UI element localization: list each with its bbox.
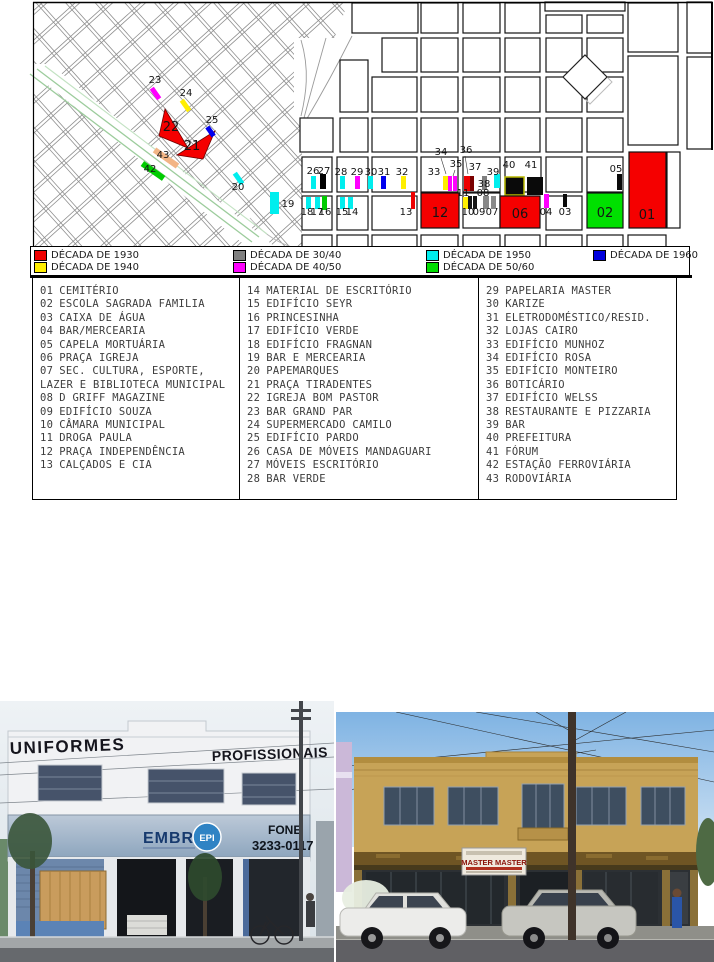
map-tick-26 (311, 176, 316, 189)
index-item-number: 14 (247, 285, 260, 297)
index-item-number: 15 (247, 298, 260, 310)
map-label-43: 43 (157, 150, 170, 161)
index-item-number: 06 (40, 352, 53, 364)
map-label-21: 21 (184, 139, 201, 154)
index-item-08: 08D GRIFF MAGAZINE (40, 392, 235, 405)
sign-bottom-line (466, 871, 522, 873)
index-column-3: 29PAPELARIA MASTER30KARIZE31ELETRODOMÉST… (479, 278, 676, 499)
tree-canopy-center (188, 853, 222, 901)
index-item-41: 41FÓRUM (486, 446, 672, 459)
index-item-04: 04BAR/MERCEARIA (40, 325, 235, 338)
legend-item: DÉCADA DE 1960 (593, 250, 698, 261)
index-item-name: EDIFÍCIO MUNHOZ (505, 339, 604, 351)
index-item-15: 15EDIFÍCIO SEYR (247, 298, 474, 311)
map-tick-04 (544, 194, 549, 208)
index-item-06: 06PRAÇA IGREJA (40, 352, 235, 365)
index-item-number: 24 (247, 419, 260, 431)
index-item-number: 10 (40, 419, 53, 431)
index-item-number: 01 (40, 285, 53, 297)
index-item-number: 41 (486, 446, 499, 458)
index-item-02: 02ESCOLA SAGRADA FAMILIA (40, 298, 235, 311)
index-item-42: 42ESTAÇÃO FERROVIÁRIA (486, 459, 672, 472)
map-label-29: 29 (351, 167, 364, 178)
index-item-number: 35 (486, 365, 499, 377)
index-item-number: 26 (247, 446, 260, 458)
legend-swatch (426, 250, 439, 261)
lilac-stripe (336, 772, 352, 778)
phone-label: FONE (268, 823, 301, 837)
index-item-23: 23BAR GRAND PAR (247, 406, 474, 419)
legend-label: DÉCADA DE 1930 (51, 250, 139, 261)
index-item-name: EDIFÍCIO MONTEIRO (505, 365, 618, 377)
index-item-name: EDIFÍCIO VERDE (266, 325, 359, 337)
brand-tagline-bar (143, 847, 195, 849)
index-item-30: 30KARIZE (486, 298, 672, 311)
sign-red-stripe (466, 867, 522, 870)
map-label-42: 42 (144, 164, 157, 175)
person-body (672, 897, 682, 928)
map-tick-40 (505, 177, 524, 195)
badge-epi: EPI (199, 833, 214, 844)
map-tick-34 (448, 176, 452, 191)
index-item-number: 22 (247, 392, 260, 404)
legend-item: DÉCADA DE 1950 (426, 250, 531, 261)
index-item-name: PAPEMARQUES (266, 365, 339, 377)
index-item-name: CÂMARA MUNICIPAL (59, 419, 165, 431)
side-building-lilac (336, 742, 352, 892)
index-item-14: 14MATERIAL DE ESCRITÓRIO (247, 285, 474, 298)
index-item-name: ESTAÇÃO FERROVIÁRIA (505, 459, 631, 471)
map-label-35: 35 (450, 159, 463, 170)
index-column-2: 14MATERIAL DE ESCRITÓRIO15EDIFÍCIO SEYR1… (240, 278, 479, 499)
map-label-37: 37 (469, 162, 482, 173)
index-item-name: PRAÇA IGREJA (59, 352, 138, 364)
building-index: 01CEMITÉRIO02ESCOLA SAGRADA FAMILIA03CAI… (32, 278, 677, 500)
index-item-name: PRAÇA TIRADENTES (266, 379, 372, 391)
city-map: 2324252221434220192627282930313233343536… (0, 0, 714, 247)
pole-crossarm (291, 709, 311, 712)
index-item-name: IGREJA BOM PASTOR (266, 392, 379, 404)
legend-swatch (426, 262, 439, 273)
index-item-number: 16 (247, 312, 260, 324)
index-item-27: 27MÓVEIS ESCRITÓRIO (247, 459, 474, 472)
blue-lower-wall (16, 921, 104, 937)
index-item-number: 02 (40, 298, 53, 310)
index-item-name: RESTAURANTE E PIZZARIA (505, 406, 651, 418)
index-item-11: 11DROGA PAULA (40, 432, 235, 445)
index-item-number: 28 (247, 473, 260, 485)
index-item-number: 27 (247, 459, 260, 471)
legend-item: DÉCADA DE 30/40 (233, 250, 341, 261)
map-label-20: 20 (232, 182, 245, 193)
index-item-19: 19BAR E MERCEARIA (247, 352, 474, 365)
map-label-06: 06 (512, 207, 529, 222)
index-item-name: KARIZE (505, 298, 545, 310)
street (0, 948, 334, 962)
sign-top-line (466, 851, 522, 855)
map-label-23: 23 (149, 75, 162, 86)
index-item-number: 29 (486, 285, 499, 297)
index-item-name: LOJAS CAIRO (505, 325, 578, 337)
map-tick-33 (443, 176, 448, 190)
map-label-14: 14 (346, 207, 359, 218)
index-item-name: EDIFÍCIO SOUZA (59, 406, 152, 418)
index-item-07: 07SEC. CULTURA, ESPORTE, LAZER E BIBLIOT… (40, 365, 235, 392)
index-item-12: 12PRAÇA INDEPENDÊNCIA (40, 446, 235, 459)
phone-number: 3233-0117 (252, 838, 313, 853)
utility-pole (568, 712, 576, 940)
index-item-43: 43RODOVIÁRIA (486, 473, 672, 486)
index-item-number: 08 (40, 392, 53, 404)
index-item-20: 20PAPEMARQUES (247, 365, 474, 378)
index-item-number: 31 (486, 312, 499, 324)
index-item-number: 19 (247, 352, 260, 364)
index-item-number: 37 (486, 392, 499, 404)
index-item-01: 01CEMITÉRIO (40, 285, 235, 298)
legend-label: DÉCADA DE 40/50 (250, 262, 341, 273)
map-label-05: 05 (610, 164, 623, 175)
legend-swatch (34, 250, 47, 261)
map-label-03: 03 (559, 207, 572, 218)
index-item-number: 18 (247, 339, 260, 351)
index-item-number: 17 (247, 325, 260, 337)
index-item-name: ESCOLA SAGRADA FAMILIA (59, 298, 205, 310)
sign-master: MASTER MASTER (461, 858, 527, 867)
index-item-number: 20 (247, 365, 260, 377)
index-item-name: BAR E MERCEARIA (266, 352, 365, 364)
index-item-name: CEMITÉRIO (59, 285, 119, 297)
index-item-number: 07 (40, 365, 53, 377)
index-item-name: CAPELA MORTUÁRIA (59, 339, 165, 351)
sidewalk (0, 937, 334, 948)
index-item-name: EDIFÍCIO PARDO (266, 432, 359, 444)
index-item-24: 24SUPERMERCADO CAMILO (247, 419, 474, 432)
index-item-name: CASA DE MÓVEIS MANDAGUARI (266, 446, 432, 458)
index-item-16: 16PRINCESINHA (247, 312, 474, 325)
legend-swatch (593, 250, 606, 261)
index-item-name: EDIFÍCIO SEYR (266, 298, 352, 310)
index-item-name: RODOVIÁRIA (505, 473, 571, 485)
index-item-37: 37EDIFÍCIO WELSS (486, 392, 672, 405)
map-label-36: 36 (460, 145, 473, 156)
index-item-39: 39BAR (486, 419, 672, 432)
index-item-number: 43 (486, 473, 499, 485)
index-item-name: D GRIFF MAGAZINE (59, 392, 165, 404)
index-item-name: CAIXA DE ÁGUA (59, 312, 145, 324)
index-item-number: 21 (247, 379, 260, 391)
index-item-number: 39 (486, 419, 499, 431)
map-label-16: 16 (319, 207, 332, 218)
map-tick (491, 196, 496, 209)
map-label-02: 02 (597, 206, 614, 221)
tree-canopy-left (8, 813, 52, 869)
map-tick-19 (270, 192, 279, 214)
index-item-number: 03 (40, 312, 53, 324)
page: 2324252221434220192627282930313233343536… (0, 0, 714, 962)
index-item-name: PRAÇA INDEPENDÊNCIA (59, 446, 185, 458)
index-item-name: EDIFÍCIO WELSS (505, 392, 598, 404)
index-item-number: 13 (40, 459, 53, 471)
index-item-21: 21PRAÇA TIRADENTES (247, 379, 474, 392)
map-label-31: 31 (378, 167, 391, 178)
index-item-name: SUPERMERCADO CAMILO (266, 419, 392, 431)
index-item-09: 09EDIFÍCIO SOUZA (40, 406, 235, 419)
index-item-35: 35EDIFÍCIO MONTEIRO (486, 365, 672, 378)
index-item-number: 36 (486, 379, 499, 391)
map-label-39: 39 (487, 167, 500, 178)
legend-swatch (233, 250, 246, 261)
utility-pole (299, 701, 303, 941)
index-item-name: SEC. CULTURA, ESPORTE, LAZER E BIBLIOTEC… (40, 365, 225, 390)
map-label-12: 12 (432, 206, 449, 221)
legend-item: DÉCADA DE 1930 (34, 250, 139, 261)
index-item-31: 31ELETRODOMÉSTICO/RESID. (486, 312, 672, 325)
legend-label: DÉCADA DE 1960 (610, 250, 698, 261)
map-label-34: 34 (435, 147, 448, 158)
index-item-name: BOTICÁRIO (505, 379, 565, 391)
legend-label: DÉCADA DE 1940 (51, 262, 139, 273)
index-item-number: 42 (486, 459, 499, 471)
map-label-13: 13 (400, 207, 413, 218)
index-item-38: 38RESTAURANTE E PIZZARIA (486, 406, 672, 419)
map-label-30: 30 (365, 167, 378, 178)
index-item-name: PAPELARIA MASTER (505, 285, 611, 297)
person-body (306, 901, 315, 927)
index-item-name: EDIFÍCIO FRAGNAN (266, 339, 372, 351)
index-item-number: 11 (40, 432, 53, 444)
legend-label: DÉCADA DE 30/40 (250, 250, 341, 261)
map-label-25: 25 (206, 115, 219, 126)
map-tick-03 (563, 194, 567, 207)
map-tick (468, 196, 472, 209)
index-item-05: 05CAPELA MORTUÁRIA (40, 339, 235, 352)
legend-item: DÉCADA DE 40/50 (233, 262, 341, 273)
index-item-name: ELETRODOMÉSTICO/RESID. (505, 312, 651, 324)
legend-swatch (34, 262, 47, 273)
legend-label: DÉCADA DE 1950 (443, 250, 531, 261)
pole-crossarm-2 (291, 717, 311, 720)
index-item-name: BAR VERDE (266, 473, 326, 485)
map-label-24: 24 (180, 88, 193, 99)
index-item-name: BAR (505, 419, 525, 431)
index-item-number: 05 (40, 339, 53, 351)
index-item-name: DROGA PAULA (59, 432, 132, 444)
index-item-28: 28BAR VERDE (247, 473, 474, 486)
legend-swatch (233, 262, 246, 273)
index-item-34: 34EDIFÍCIO ROSA (486, 352, 672, 365)
legend-item: DÉCADA DE 50/60 (426, 262, 534, 273)
index-item-number: 34 (486, 352, 499, 364)
blue-stripe (243, 859, 249, 937)
index-item-number: 30 (486, 298, 499, 310)
map-label-01: 01 (639, 208, 656, 223)
goods-stack (127, 915, 167, 935)
index-item-number: 09 (40, 406, 53, 418)
index-item-36: 36BOTICÁRIO (486, 379, 672, 392)
index-item-number: 23 (247, 406, 260, 418)
legend-item: DÉCADA DE 1940 (34, 262, 139, 273)
index-item-name: PREFEITURA (505, 432, 571, 444)
index-item-name: CALÇADOS E CIA (59, 459, 152, 471)
index-item-name: PRINCESINHA (266, 312, 339, 324)
person-head (306, 893, 314, 901)
index-item-name: BAR/MERCEARIA (59, 325, 145, 337)
index-column-1: 01CEMITÉRIO02ESCOLA SAGRADA FAMILIA03CAI… (33, 278, 240, 499)
index-item-18: 18EDIFÍCIO FRAGNAN (247, 339, 474, 352)
index-item-number: 32 (486, 325, 499, 337)
index-item-name: EDIFÍCIO ROSA (505, 352, 591, 364)
index-item-40: 40PREFEITURA (486, 432, 672, 445)
index-item-number: 40 (486, 432, 499, 444)
index-item-name: BAR GRAND PAR (266, 406, 352, 418)
map-tick-05 (617, 174, 622, 190)
map-tick (470, 176, 474, 191)
index-item-name: MÓVEIS ESCRITÓRIO (266, 459, 379, 471)
map-label-32: 32 (396, 167, 409, 178)
index-item-number: 12 (40, 446, 53, 458)
store-opening-right (243, 859, 303, 937)
index-item-10: 10CÂMARA MUNICIPAL (40, 419, 235, 432)
map-label-40: 40 (503, 160, 516, 171)
map-label-08: 08 (477, 188, 490, 199)
index-item-name: MATERIAL DE ESCRITÓRIO (266, 285, 412, 297)
balcony (518, 828, 568, 840)
person-head (673, 889, 682, 898)
side-wall-right (316, 821, 334, 937)
map-legend: DÉCADA DE 1930DÉCADA DE 1940DÉCADA DE 30… (30, 246, 690, 275)
index-item-22: 22IGREJA BOM PASTOR (247, 392, 474, 405)
map-label-04: 04 (540, 207, 553, 218)
map-label-27: 27 (318, 166, 331, 177)
map-label-19: 19 (282, 199, 295, 210)
map-label-28: 28 (335, 167, 348, 178)
index-item-25: 25EDIFÍCIO PARDO (247, 432, 474, 445)
index-item-number: 04 (40, 325, 53, 337)
index-item-29: 29PAPELARIA MASTER (486, 285, 672, 298)
index-item-number: 33 (486, 339, 499, 351)
index-item-name: FÓRUM (505, 446, 538, 458)
index-item-13: 13CALÇADOS E CIA (40, 459, 235, 472)
map-label-22: 22 (163, 120, 180, 135)
index-item-03: 03CAIXA DE ÁGUA (40, 312, 235, 325)
index-item-17: 17EDIFÍCIO VERDE (247, 325, 474, 338)
index-item-33: 33EDIFÍCIO MUNHOZ (486, 339, 672, 352)
legend-label: DÉCADA DE 50/60 (443, 262, 534, 273)
map-label-33: 33 (428, 167, 441, 178)
photo-left-uniformes-building: UNIFORMES PROFISSIONAIS EMBRA EPI FONE 3… (0, 701, 334, 962)
sign-uniformes: UNIFORMES (9, 735, 125, 758)
index-item-number: 25 (247, 432, 260, 444)
index-item-32: 32LOJAS CAIRO (486, 325, 672, 338)
index-item-26: 26CASA DE MÓVEIS MANDAGUARI (247, 446, 474, 459)
map-tick-41 (527, 177, 543, 195)
map-tick (473, 196, 477, 209)
index-item-number: 38 (486, 406, 499, 418)
photo-right-master-building: MASTER MASTER (336, 712, 714, 962)
map-label-41: 41 (525, 160, 538, 171)
parapet-edge (354, 757, 698, 763)
